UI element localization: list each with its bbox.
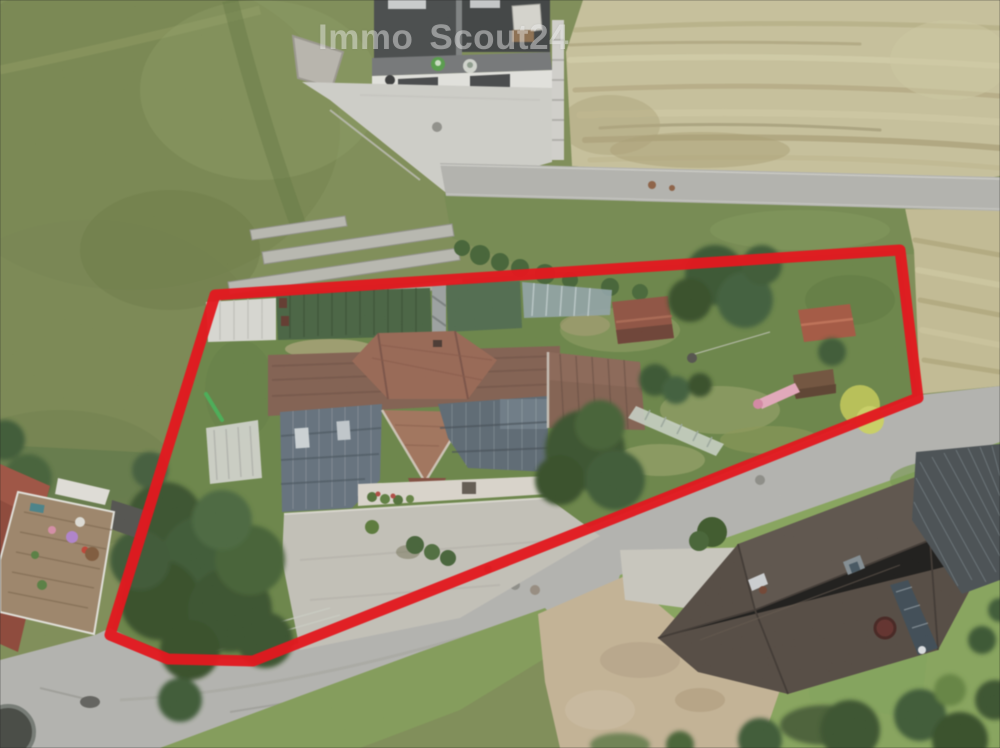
photo-grain	[0, 0, 1000, 748]
aerial-photo-canvas	[0, 0, 1000, 748]
aerial-photo: ImmoScout24	[0, 0, 1000, 748]
